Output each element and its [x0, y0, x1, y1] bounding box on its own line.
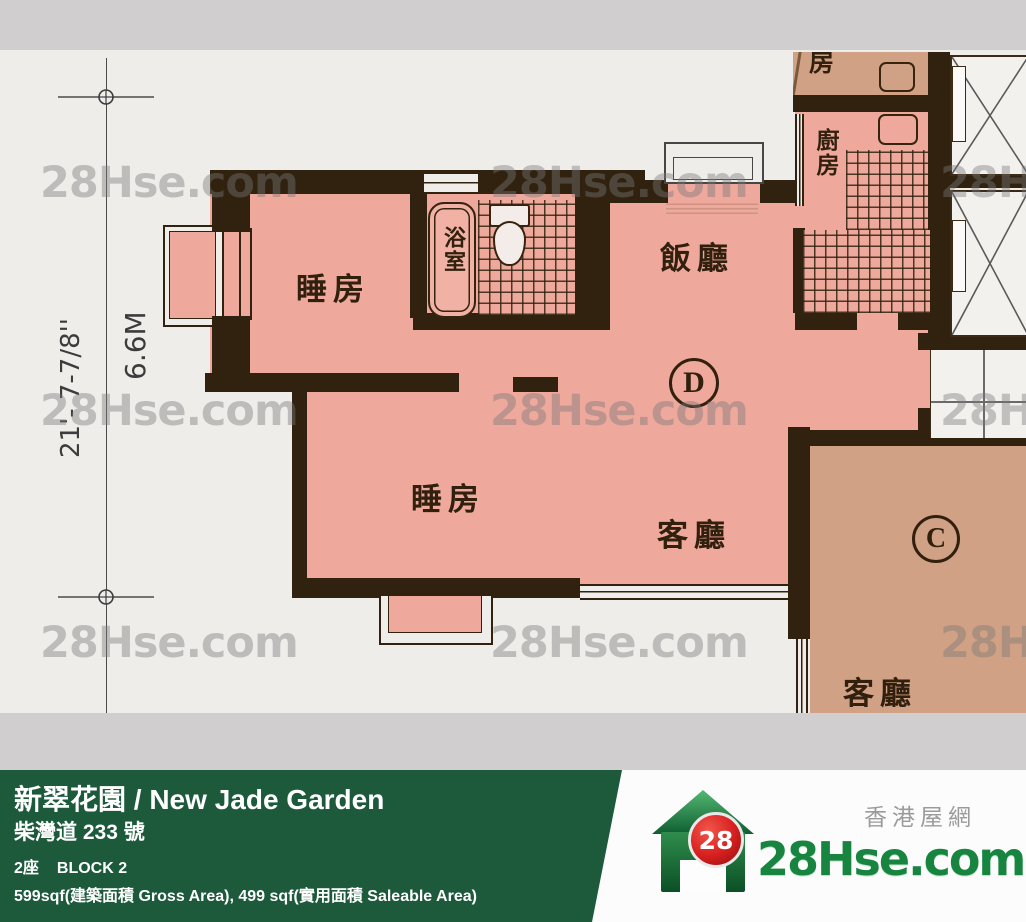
watermark: 28Hse.com [40, 386, 298, 436]
watermark: 28Hse.com [940, 618, 1026, 668]
site-logo-text: 28Hse.com [757, 832, 1024, 886]
watermark: 28Hse.com [40, 618, 298, 668]
window-living-c [796, 639, 808, 713]
wall-segment [760, 180, 800, 203]
wall-segment [788, 427, 810, 639]
wall-segment [898, 313, 930, 330]
wall-segment [292, 578, 580, 598]
bay-window-inner [169, 231, 216, 319]
watermark: 28Hse.com [490, 618, 748, 668]
adjacent-unit-room: 房 [793, 52, 930, 95]
lift-door-2 [952, 220, 966, 292]
watermark: 28Hse.com [40, 158, 298, 208]
site-tagline: 香港屋網 [864, 798, 976, 832]
entry-corridor-area [810, 330, 930, 443]
window-bedroom1 [239, 228, 252, 320]
adjacent-room-label: 房 [809, 52, 840, 79]
dimension-label-metric: 6.6M [119, 311, 152, 380]
partition-kitchen [795, 114, 804, 206]
bedroom1-label: 睡房 [296, 264, 370, 309]
bathroom-label: 浴室 [437, 226, 469, 274]
block-en: BLOCK 2 [57, 860, 127, 877]
bay-window-bedroom1 [163, 225, 224, 327]
slanted-wall-line [793, 52, 802, 95]
watermark: 28Hse.com [940, 158, 1026, 208]
living-c-label: 客廳 [843, 668, 917, 713]
adjacent-sink [879, 62, 915, 92]
unit-c-label: C [912, 515, 960, 563]
wall-segment [795, 313, 857, 330]
survey-marker-icon [58, 88, 154, 106]
footer-banner: 新翠花園 / New Jade Garden 柴灣道 233 號 2座BLOCK… [0, 770, 622, 922]
wall-segment [410, 194, 427, 318]
kitchen-label: 廚房 [808, 128, 842, 178]
estate-title: 新翠花園 / New Jade Garden [14, 778, 384, 818]
watermark: 28Hse.com [490, 386, 748, 436]
wall-segment [793, 95, 930, 112]
lift-door-1 [952, 66, 966, 142]
dining-label: 飯廳 [660, 233, 734, 278]
badge-28-icon: 28 [688, 812, 744, 868]
block-info: 2座BLOCK 2 [14, 854, 127, 878]
living-d-label: 客廳 [657, 510, 731, 555]
bay-window-bedroom2 [379, 596, 493, 645]
kitchen-tiles-lower [803, 230, 930, 313]
bedroom2-label: 睡房 [411, 474, 485, 519]
survey-marker-icon [58, 588, 154, 606]
area-info: 599sqf(建築面積 Gross Area), 499 sqf(實用面積 Sa… [14, 882, 477, 906]
floor-plan-screenshot: 21'- 7-7/8'' 6.6M 房 [0, 0, 1026, 922]
block-cn: 2座 [14, 860, 39, 877]
watermark: 28Hse.com [490, 158, 748, 208]
kitchen-sink [878, 114, 918, 145]
kitchen-tiles-upper [846, 150, 928, 230]
estate-address: 柴灣道 233 號 [14, 816, 145, 846]
wall-segment [575, 194, 610, 330]
window-bathroom [424, 172, 478, 194]
watermark: 28Hse.com [940, 386, 1026, 436]
bay-window-bedroom2-inner [388, 596, 482, 633]
window-living-d [580, 584, 788, 600]
